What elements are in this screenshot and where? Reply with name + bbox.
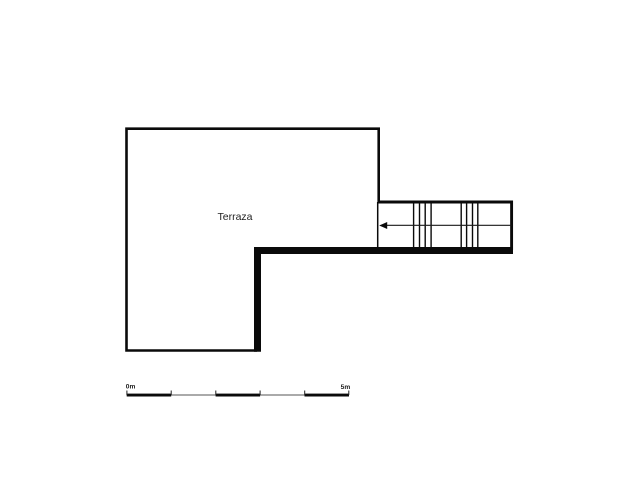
svg-text:Terraza: Terraza [217,211,252,223]
svg-text:0m: 0m [126,383,136,390]
svg-text:5m: 5m [341,384,351,391]
